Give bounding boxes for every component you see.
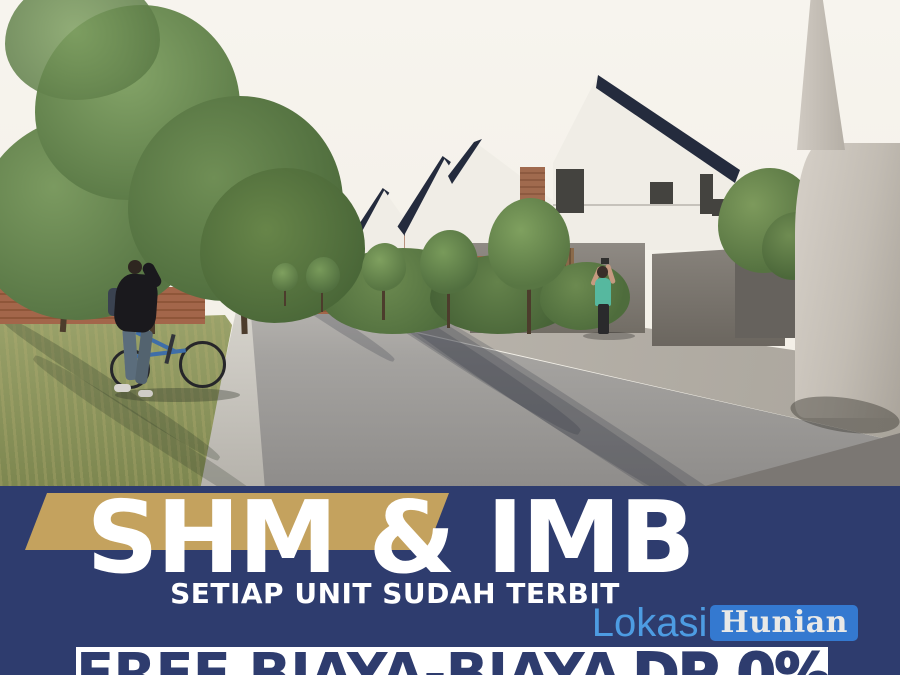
street-tree-trunk [321, 290, 323, 312]
woman-head [597, 266, 608, 278]
person-head [128, 260, 142, 274]
street-tree-trunk [447, 290, 450, 328]
woman-pants [598, 304, 609, 334]
poster: { "theme": { "navy": "#2e3c6e", "gold": … [0, 0, 900, 675]
lokasi-hunian-logo: Lokasi Hunian [592, 604, 858, 642]
window [650, 182, 673, 204]
bicycle-wheel [179, 341, 226, 388]
person-shoe [114, 384, 131, 392]
window [556, 169, 584, 213]
promo-prefix: FREE BIAYA-BIAYA [76, 647, 621, 675]
promo-highlight: DP 0% [633, 647, 828, 675]
woman-top [595, 278, 611, 306]
street-tree-trunk [382, 288, 385, 320]
promo-banner: SHM & IMB SETIAP UNIT SUDAH TERBIT Lokas… [0, 486, 900, 675]
promo-band: FREE BIAYA-BIAYADP 0% [76, 647, 828, 675]
woman-shadow [583, 332, 635, 340]
concrete-wall [795, 143, 900, 418]
cyclist-shadow [115, 388, 240, 402]
logo-text-lokasi: Lokasi [592, 604, 708, 642]
headline: SHM & IMB [40, 488, 740, 588]
street-render [0, 0, 900, 490]
phone [601, 258, 609, 264]
person-shoe [138, 390, 153, 397]
street-tree-trunk [527, 288, 531, 334]
logo-text-hunian: Hunian [720, 605, 848, 641]
promo-text: FREE BIAYA-BIAYADP 0% [76, 647, 828, 675]
logo-box: Hunian [710, 605, 858, 641]
